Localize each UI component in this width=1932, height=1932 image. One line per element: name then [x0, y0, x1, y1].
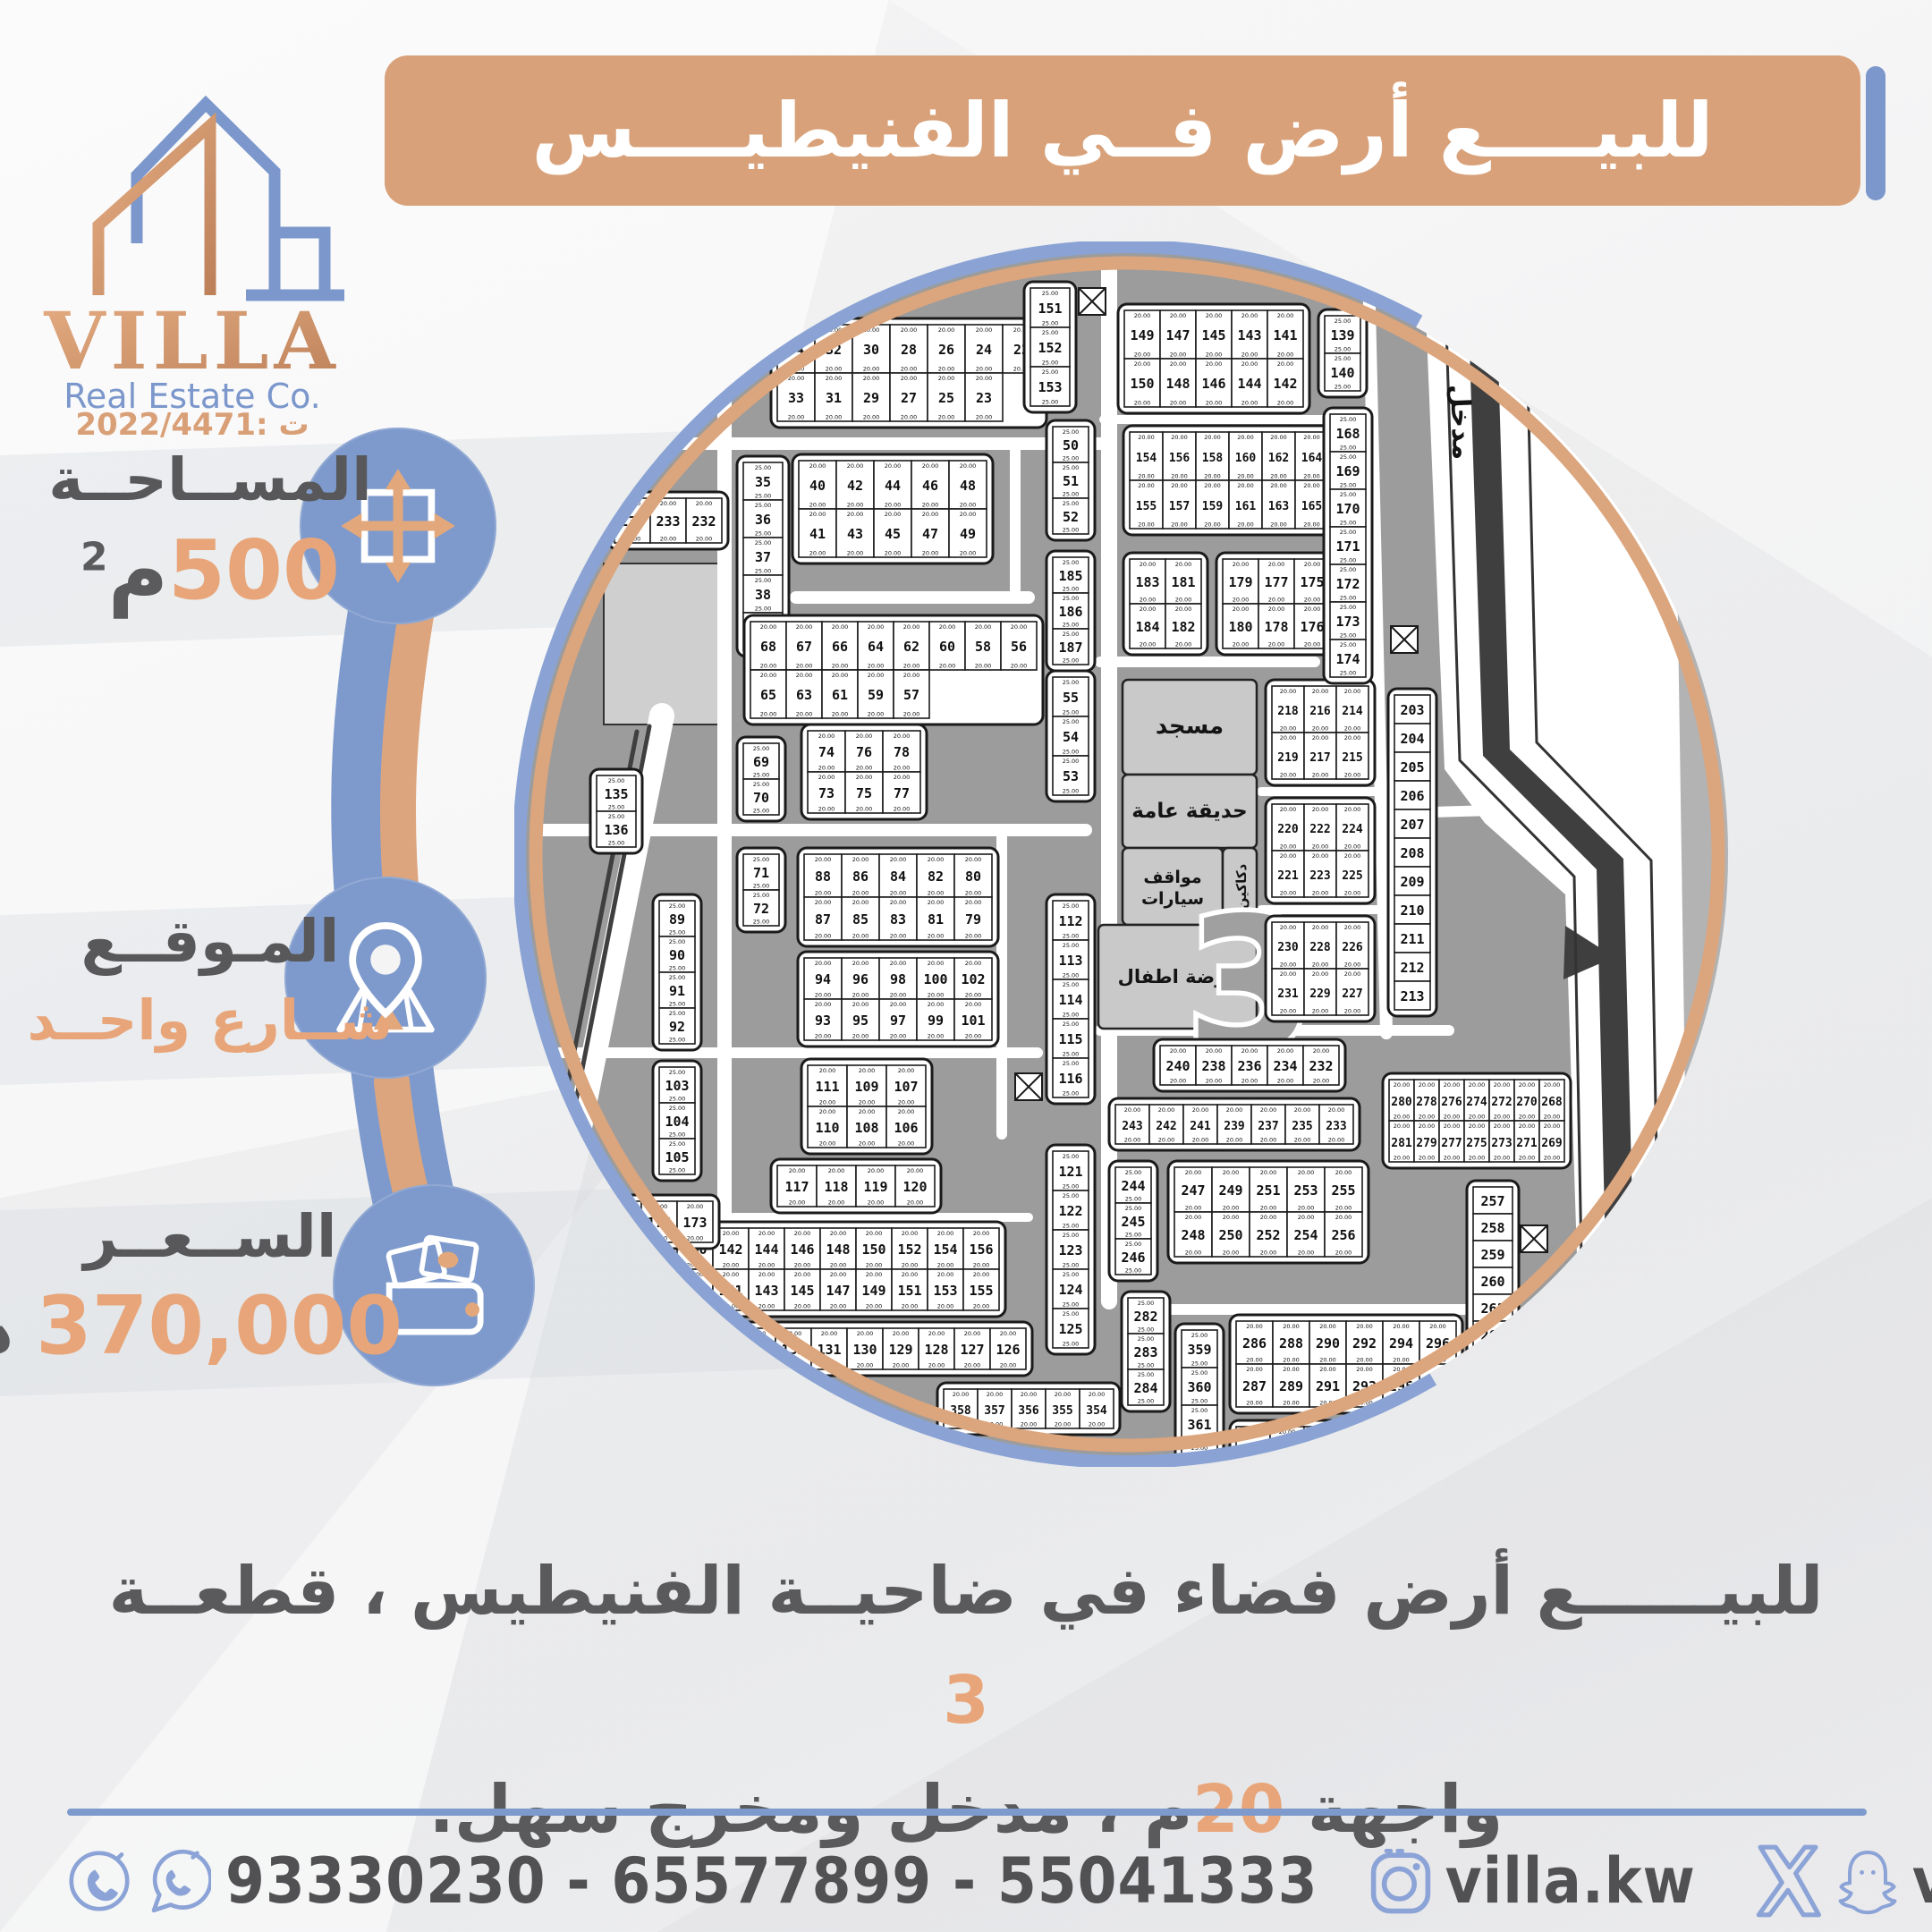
- plot-number: 274: [1466, 1096, 1487, 1109]
- svg-text:20.00: 20.00: [901, 375, 918, 382]
- svg-text:20.00: 20.00: [1335, 1250, 1352, 1257]
- svg-text:25.00: 25.00: [1063, 1192, 1080, 1199]
- svg-text:20.00: 20.00: [922, 550, 939, 557]
- svg-text:20.00: 20.00: [1170, 360, 1187, 368]
- svg-text:20.00: 20.00: [1335, 1169, 1352, 1176]
- svg-text:20.00: 20.00: [758, 1271, 775, 1278]
- plot-block: 11720.0020.0011820.0020.0011920.0020.001…: [771, 1159, 941, 1213]
- svg-text:20.00: 20.00: [1268, 597, 1285, 604]
- svg-text:20.00: 20.00: [1449, 1428, 1466, 1436]
- svg-text:20.00: 20.00: [1394, 1155, 1411, 1162]
- svg-text:25.00: 25.00: [1063, 559, 1080, 566]
- svg-text:20.00: 20.00: [760, 672, 777, 679]
- svg-text:20.00: 20.00: [1140, 606, 1157, 613]
- plot-cell: [1474, 1427, 1508, 1467]
- svg-text:25.00: 25.00: [1042, 360, 1059, 367]
- plot-number: 230: [1277, 941, 1299, 954]
- plot-number: 291: [1316, 1378, 1340, 1394]
- plot-number: 130: [852, 1342, 877, 1358]
- plot-number: 357: [984, 1404, 1004, 1418]
- plot-number: 173: [1335, 614, 1360, 630]
- svg-text:20.00: 20.00: [885, 511, 902, 518]
- plot-number: 287: [1242, 1378, 1267, 1394]
- plot-number: 210: [1400, 902, 1424, 919]
- svg-text:20.00: 20.00: [1223, 1205, 1240, 1212]
- svg-text:25.00: 25.00: [669, 929, 686, 936]
- svg-text:20.00: 20.00: [815, 1001, 832, 1008]
- svg-text:25.00: 25.00: [1125, 1205, 1142, 1212]
- svg-text:25.00: 25.00: [753, 856, 770, 863]
- plot-number: 37: [755, 549, 771, 565]
- plot-number: 111: [815, 1079, 839, 1095]
- svg-text:25.00: 25.00: [1335, 384, 1352, 391]
- svg-text:20.00: 20.00: [1171, 434, 1188, 441]
- plot-number: 216: [1309, 705, 1331, 718]
- plot-number: 278: [1416, 1096, 1437, 1109]
- svg-text:20.00: 20.00: [901, 326, 918, 334]
- svg-text:20.00: 20.00: [922, 502, 939, 509]
- svg-text:20.00: 20.00: [1280, 852, 1297, 860]
- svg-text:20.00: 20.00: [973, 1230, 990, 1237]
- svg-text:20.00: 20.00: [723, 1262, 740, 1269]
- svg-text:20.00: 20.00: [973, 1303, 990, 1310]
- svg-text:20.00: 20.00: [1393, 1357, 1410, 1364]
- substation-xbox: [1015, 1073, 1042, 1100]
- plot-block: 18320.0020.0018120.0020.0018420.0020.001…: [1123, 553, 1207, 655]
- plot-number: 180: [1228, 619, 1252, 635]
- plot-number: 95: [852, 1013, 869, 1029]
- svg-text:20.00: 20.00: [1185, 1214, 1202, 1221]
- svg-text:20.00: 20.00: [1517, 1428, 1534, 1436]
- plot-number: 280: [1391, 1096, 1412, 1109]
- svg-text:20.00: 20.00: [1204, 482, 1221, 489]
- svg-text:20.00: 20.00: [1260, 1169, 1277, 1176]
- svg-text:20.00: 20.00: [890, 1001, 907, 1008]
- svg-text:20.00: 20.00: [856, 806, 873, 813]
- svg-text:25.00: 25.00: [1138, 1398, 1155, 1405]
- svg-text:25.00: 25.00: [669, 1037, 686, 1044]
- svg-text:20.00: 20.00: [788, 326, 805, 334]
- svg-text:25.00: 25.00: [1063, 428, 1080, 436]
- svg-text:20.00: 20.00: [857, 1330, 874, 1337]
- plot-block: 8820.0020.008620.0020.008420.0020.008220…: [798, 848, 998, 946]
- svg-text:20.00: 20.00: [856, 733, 873, 740]
- svg-text:20.00: 20.00: [1223, 1214, 1240, 1221]
- plot-number: 247: [1181, 1182, 1205, 1199]
- svg-text:20.00: 20.00: [894, 765, 911, 772]
- plot-cell: [668, 1328, 704, 1369]
- svg-text:20.00: 20.00: [1270, 521, 1287, 529]
- svg-text:20.00: 20.00: [890, 856, 907, 863]
- svg-text:مسجد: مسجد: [1156, 713, 1224, 740]
- plot-number: 36: [755, 512, 771, 528]
- svg-text:20.00: 20.00: [1283, 1323, 1300, 1330]
- plot-number: 33: [788, 390, 804, 406]
- plot-number: 92: [669, 1019, 685, 1035]
- plot-number: 239: [1224, 1120, 1244, 1133]
- plot-number: 256: [1331, 1227, 1355, 1243]
- x-icon[interactable]: [1750, 1843, 1826, 1919]
- plot-number: 157: [1169, 500, 1190, 513]
- svg-text:20.00: 20.00: [789, 1167, 806, 1174]
- svg-text:20.00: 20.00: [1241, 352, 1258, 359]
- svg-text:25.00: 25.00: [1063, 657, 1080, 665]
- plot-number: 118: [824, 1179, 848, 1195]
- plot-number: 151: [1038, 301, 1062, 317]
- plot-number: 171: [1335, 538, 1360, 555]
- svg-text:20.00: 20.00: [1241, 1047, 1258, 1055]
- plot-number: 246: [1121, 1250, 1145, 1266]
- svg-text:25.00: 25.00: [755, 568, 772, 575]
- plot-block: 23020.0020.0022820.0020.0022620.0020.002…: [1266, 916, 1375, 1021]
- plot-number: 187: [1058, 640, 1082, 656]
- plot-number: 160: [1235, 452, 1257, 465]
- svg-text:20.00: 20.00: [859, 1099, 876, 1106]
- plot-number: 124: [1058, 1282, 1082, 1298]
- plot-number: 97: [890, 1013, 906, 1029]
- plot-number: 49: [960, 526, 976, 542]
- plot-cell: [1473, 1455, 1513, 1467]
- svg-text:20.00: 20.00: [1277, 360, 1294, 368]
- plot-number: 84: [890, 869, 906, 885]
- social-handle[interactable]: villa_kw: [1912, 1844, 1932, 1918]
- svg-text:25.00: 25.00: [1191, 1332, 1208, 1339]
- svg-text:20.00: 20.00: [894, 774, 911, 781]
- svg-text:20.00: 20.00: [938, 375, 955, 382]
- svg-text:20.00: 20.00: [580, 1203, 597, 1210]
- svg-text:20.00: 20.00: [890, 933, 907, 940]
- svg-text:20.00: 20.00: [902, 1230, 919, 1237]
- svg-text:20.00: 20.00: [1444, 1123, 1461, 1130]
- svg-text:20.00: 20.00: [1268, 606, 1285, 613]
- svg-text:20.00: 20.00: [794, 1262, 811, 1269]
- whatsapp-icon[interactable]: [141, 1846, 211, 1916]
- plot-number: 292: [1352, 1335, 1377, 1352]
- svg-text:20.00: 20.00: [847, 511, 864, 518]
- svg-text:25.00: 25.00: [669, 974, 686, 981]
- svg-text:20.00: 20.00: [1140, 561, 1157, 568]
- plot-number: 56: [1011, 639, 1027, 655]
- svg-text:20.00: 20.00: [1415, 1461, 1432, 1468]
- plot-number: 178: [1264, 619, 1288, 635]
- plot-number: 231: [1277, 987, 1299, 1001]
- svg-text:20.00: 20.00: [890, 960, 907, 967]
- substation-xbox: [1391, 626, 1418, 653]
- svg-text:20.00: 20.00: [1000, 1362, 1017, 1369]
- plot-number: 359: [1187, 1342, 1211, 1358]
- svg-text:20.00: 20.00: [1303, 521, 1320, 529]
- plot-number: 29: [863, 390, 879, 406]
- snapchat-icon[interactable]: [1832, 1845, 1903, 1917]
- plot-number: 108: [854, 1120, 878, 1136]
- plot-cell: [570, 1201, 606, 1242]
- svg-text:20.00: 20.00: [1021, 1391, 1038, 1398]
- plot-number: 31: [826, 390, 842, 406]
- plot-block: 9420.0020.009620.0020.009820.0020.001002…: [798, 952, 998, 1046]
- substation-xbox: [1521, 1225, 1547, 1252]
- svg-text:20.00: 20.00: [830, 1271, 847, 1278]
- svg-text:20.00: 20.00: [1223, 1250, 1240, 1257]
- svg-text:25.00: 25.00: [1063, 1223, 1080, 1230]
- svg-text:20.00: 20.00: [696, 536, 713, 543]
- svg-text:20.00: 20.00: [1246, 1400, 1263, 1407]
- svg-text:20.00: 20.00: [1304, 561, 1321, 568]
- svg-text:25.00: 25.00: [1063, 933, 1080, 940]
- svg-text:20.00: 20.00: [830, 1303, 847, 1310]
- plot-number: 249: [1218, 1182, 1242, 1199]
- svg-text:20.00: 20.00: [1344, 688, 1361, 695]
- svg-text:20.00: 20.00: [1055, 1421, 1072, 1428]
- plot-number: 117: [784, 1179, 809, 1195]
- svg-text:20.00: 20.00: [794, 1303, 811, 1310]
- plot-number: 104: [665, 1114, 689, 1130]
- svg-text:20.00: 20.00: [815, 933, 832, 940]
- svg-text:20.00: 20.00: [760, 663, 777, 670]
- plot-number: 282: [1133, 1309, 1157, 1325]
- plot-number: 59: [868, 687, 884, 703]
- svg-text:20.00: 20.00: [1226, 1106, 1243, 1114]
- svg-text:20.00: 20.00: [1381, 1461, 1398, 1468]
- svg-text:20.00: 20.00: [976, 326, 993, 334]
- svg-text:20.00: 20.00: [863, 366, 880, 373]
- plot-number: 127: [960, 1342, 984, 1358]
- svg-text:20.00: 20.00: [832, 623, 849, 631]
- svg-text:25.00: 25.00: [755, 493, 772, 500]
- svg-text:20.00: 20.00: [1419, 1123, 1436, 1130]
- plot-number: 286: [1242, 1335, 1267, 1352]
- plot-cell: [1372, 1427, 1406, 1467]
- price-label: الســعــر: [36, 1202, 385, 1271]
- svg-text:20.00: 20.00: [1298, 1205, 1315, 1212]
- svg-text:20.00: 20.00: [965, 992, 982, 999]
- plot-number: 27: [901, 390, 917, 406]
- plot-number: 61: [832, 687, 848, 703]
- phone-numbers[interactable]: 93330230 - 65577899 - 55041333: [225, 1844, 1318, 1918]
- svg-text:20.00: 20.00: [852, 1001, 869, 1008]
- plot-number: 149: [1130, 327, 1154, 343]
- svg-text:20.00: 20.00: [847, 550, 864, 557]
- svg-text:20.00: 20.00: [1335, 1205, 1352, 1212]
- svg-text:20.00: 20.00: [1055, 1391, 1072, 1398]
- plot-number: 96: [852, 971, 869, 987]
- svg-text:20.00: 20.00: [965, 1001, 982, 1008]
- svg-text:20.00: 20.00: [1303, 434, 1320, 441]
- logo-building-copper: [72, 125, 228, 295]
- plot-number: 209: [1400, 874, 1424, 890]
- plot-number: 237: [1258, 1120, 1278, 1133]
- plot-block: 21820.0020.0021620.0020.0021420.0020.002…: [1266, 680, 1375, 785]
- plot-number: 71: [753, 865, 769, 881]
- svg-text:25.00: 25.00: [1063, 788, 1080, 795]
- svg-text:20.00: 20.00: [1241, 400, 1258, 407]
- svg-text:20.00: 20.00: [1237, 434, 1254, 441]
- svg-text:20.00: 20.00: [852, 1033, 869, 1040]
- instagram-handle[interactable]: villa.kw: [1445, 1844, 1696, 1918]
- plot-number: 90: [669, 947, 685, 963]
- plot-number: 172: [1335, 576, 1360, 592]
- svg-text:25.00: 25.00: [669, 965, 686, 972]
- plot-number: 241: [1190, 1120, 1211, 1133]
- plot-number: 30: [863, 342, 879, 358]
- plot-number: 305: [1378, 1443, 1399, 1456]
- svg-text:20.00: 20.00: [1138, 473, 1155, 480]
- plot-number: 123: [1058, 1242, 1082, 1258]
- plot-number: 149: [861, 1283, 885, 1299]
- svg-text:20.00: 20.00: [964, 1330, 981, 1337]
- svg-text:20.00: 20.00: [1356, 1357, 1373, 1364]
- svg-text:25.00: 25.00: [1042, 399, 1059, 406]
- svg-text:25.00: 25.00: [1063, 718, 1080, 725]
- svg-text:20.00: 20.00: [1328, 1137, 1345, 1144]
- plot-number: 100: [923, 971, 947, 987]
- svg-text:20.00: 20.00: [1241, 360, 1258, 368]
- svg-text:20.00: 20.00: [885, 502, 902, 509]
- svg-text:20.00: 20.00: [815, 899, 832, 906]
- svg-text:20.00: 20.00: [1283, 1400, 1300, 1407]
- svg-text:20.00: 20.00: [902, 1262, 919, 1269]
- svg-text:20.00: 20.00: [1280, 688, 1297, 695]
- svg-text:20.00: 20.00: [965, 856, 982, 863]
- instagram-icon[interactable]: [1365, 1845, 1436, 1917]
- svg-text:20.00: 20.00: [1233, 606, 1250, 613]
- plot-block: 5025.0025.005125.0025.005225.0025.00: [1046, 420, 1095, 540]
- svg-text:25.00: 25.00: [1340, 482, 1357, 489]
- plot-number: 215: [1342, 751, 1362, 765]
- plot-block: 17920.0020.0017720.0020.0017520.0020.001…: [1216, 553, 1336, 655]
- plot-number: 129: [888, 1342, 912, 1358]
- price-number: 370,000: [36, 1279, 402, 1373]
- svg-text:20.00: 20.00: [1312, 890, 1329, 897]
- svg-text:25.00: 25.00: [1063, 1153, 1080, 1160]
- svg-text:20.00: 20.00: [868, 623, 885, 631]
- svg-text:20.00: 20.00: [789, 1199, 806, 1207]
- svg-text:20.00: 20.00: [938, 366, 955, 373]
- svg-text:25.00: 25.00: [1063, 1021, 1080, 1028]
- plot-number: 91: [669, 983, 685, 999]
- svg-text:20.00: 20.00: [1124, 1137, 1141, 1144]
- svg-text:20.00: 20.00: [903, 663, 920, 670]
- svg-text:20.00: 20.00: [965, 960, 982, 967]
- svg-text:25.00: 25.00: [1340, 670, 1357, 677]
- plot-number: 213: [1400, 988, 1424, 1004]
- svg-text:20.00: 20.00: [826, 366, 843, 373]
- svg-text:20.00: 20.00: [856, 774, 873, 781]
- svg-text:20.00: 20.00: [818, 733, 835, 740]
- svg-text:20.00: 20.00: [1312, 806, 1329, 813]
- plot-number: 143: [754, 1283, 778, 1299]
- plot-number: 65: [760, 687, 776, 703]
- svg-text:20.00: 20.00: [1544, 1155, 1561, 1162]
- svg-text:25.00: 25.00: [1063, 595, 1080, 602]
- svg-text:20.00: 20.00: [815, 960, 832, 967]
- svg-text:20.00: 20.00: [1304, 606, 1321, 613]
- svg-text:20.00: 20.00: [660, 536, 677, 543]
- svg-text:20.00: 20.00: [819, 1140, 836, 1148]
- svg-text:20.00: 20.00: [866, 1262, 883, 1269]
- plot-block: 22020.0020.0022220.0020.0022420.0020.002…: [1266, 798, 1375, 903]
- svg-text:20.00: 20.00: [1344, 890, 1361, 897]
- plot-number: 145: [1201, 327, 1225, 343]
- svg-text:20.00: 20.00: [826, 375, 843, 382]
- plot-block: 24320.0020.0024220.0020.0024120.0020.002…: [1109, 1098, 1360, 1150]
- plot-number: 234: [1273, 1058, 1297, 1074]
- svg-text:20.00: 20.00: [1344, 924, 1361, 931]
- plot-number: 211: [1400, 931, 1424, 947]
- plot-number: 87: [815, 911, 831, 928]
- plot-number: 182: [1171, 619, 1195, 635]
- plot-number: 50: [1063, 437, 1079, 453]
- svg-text:20.00: 20.00: [1319, 1323, 1336, 1330]
- plot-number: 259: [1480, 1247, 1504, 1263]
- svg-text:25.00: 25.00: [1042, 369, 1059, 376]
- plot-block: 5525.0025.005425.0025.005325.0025.00: [1046, 671, 1095, 801]
- svg-text:20.00: 20.00: [885, 550, 902, 557]
- svg-text:25.00: 25.00: [608, 777, 625, 784]
- plot-number: 248: [1181, 1227, 1205, 1243]
- svg-text:20.00: 20.00: [1138, 521, 1155, 529]
- plot-number: 110: [815, 1120, 839, 1136]
- plot-number: 355: [1052, 1404, 1072, 1418]
- svg-text:20.00: 20.00: [965, 1033, 982, 1040]
- plot-number: 23: [976, 390, 992, 406]
- plot-number: 62: [903, 639, 919, 655]
- svg-text:20.00: 20.00: [1260, 1137, 1277, 1144]
- plot-block: 28225.0025.0028325.0025.0028425.0025.00: [1122, 1292, 1170, 1411]
- plot-number: 217: [1309, 751, 1330, 765]
- svg-text:20.00: 20.00: [819, 1067, 836, 1074]
- svg-text:25.00: 25.00: [1063, 758, 1080, 765]
- svg-text:20.00: 20.00: [1171, 473, 1188, 480]
- svg-text:25.00: 25.00: [1340, 445, 1357, 452]
- svg-text:20.00: 20.00: [1344, 1008, 1361, 1015]
- svg-text:25.00: 25.00: [1125, 1241, 1142, 1248]
- plot-number: 162: [1268, 452, 1289, 465]
- plot-number: 74: [818, 744, 835, 760]
- svg-text:20.00: 20.00: [928, 856, 945, 863]
- svg-text:20.00: 20.00: [1344, 806, 1361, 813]
- svg-text:20.00: 20.00: [1312, 688, 1329, 695]
- svg-text:20.00: 20.00: [898, 1099, 915, 1106]
- plot-number: 168: [1335, 426, 1360, 442]
- plot-number: 24: [976, 342, 992, 358]
- area-value: 500م2: [18, 522, 402, 618]
- svg-text:20.00: 20.00: [1158, 1137, 1175, 1144]
- svg-text:20.00: 20.00: [815, 890, 832, 897]
- svg-text:25.00: 25.00: [753, 883, 770, 890]
- plot-number: 275: [1466, 1137, 1487, 1150]
- svg-text:20.00: 20.00: [832, 711, 849, 718]
- svg-text:20.00: 20.00: [1469, 1114, 1486, 1121]
- svg-text:20.00: 20.00: [760, 623, 777, 631]
- svg-text:20.00: 20.00: [1394, 1114, 1411, 1121]
- svg-text:20.00: 20.00: [1483, 1428, 1500, 1436]
- plot-number: 150: [1130, 376, 1154, 392]
- plot-number: 260: [1480, 1274, 1504, 1290]
- plot-number: 264: [1480, 1381, 1504, 1397]
- svg-text:20.00: 20.00: [1268, 641, 1285, 648]
- svg-text:25.00: 25.00: [753, 781, 770, 788]
- svg-text:20.00: 20.00: [1283, 1366, 1300, 1373]
- svg-text:25.00: 25.00: [1063, 500, 1080, 507]
- plot-cell: [1473, 1375, 1513, 1402]
- plot-number: 219: [1277, 751, 1298, 765]
- svg-text:20.00: 20.00: [928, 890, 945, 897]
- phone-icon[interactable]: [64, 1846, 134, 1916]
- plot-number: 179: [1228, 574, 1252, 590]
- svg-text:25.00: 25.00: [1063, 1051, 1080, 1058]
- svg-text:20.00: 20.00: [1175, 561, 1192, 568]
- svg-text:25.00: 25.00: [1191, 1407, 1208, 1414]
